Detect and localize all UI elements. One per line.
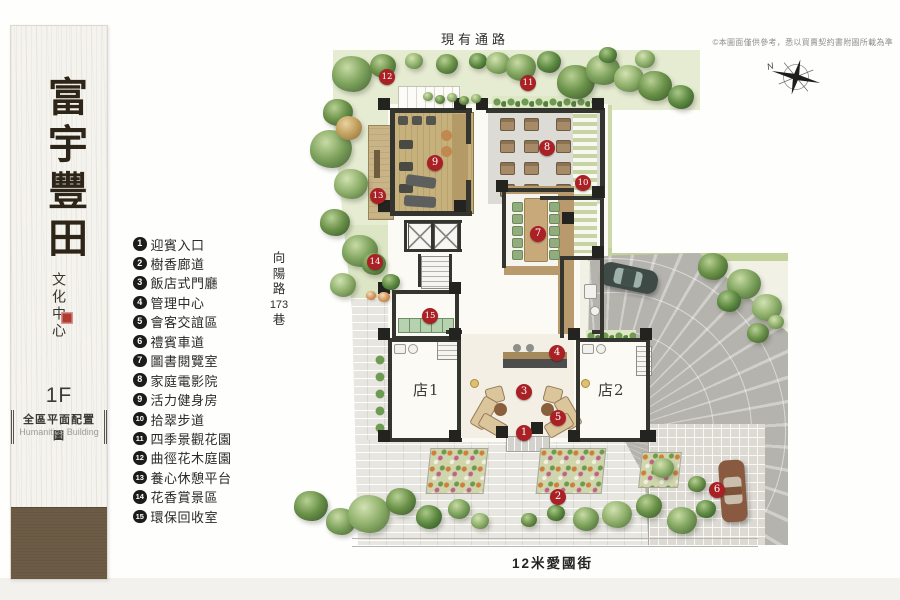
hedge-strip bbox=[374, 352, 386, 436]
legend-item: 4管理中心 bbox=[133, 294, 205, 310]
tree-icon bbox=[635, 50, 655, 68]
compass-n-label: N bbox=[766, 60, 775, 72]
legend-item: 3飯店式門廳 bbox=[133, 275, 218, 291]
stairs bbox=[421, 256, 451, 289]
structural-column bbox=[378, 328, 390, 340]
wall-segment bbox=[592, 330, 604, 334]
sidebar-footer-block bbox=[11, 507, 107, 579]
legend-number-badge: 1 bbox=[133, 237, 147, 251]
legend-item: 15環保回收室 bbox=[133, 508, 218, 524]
structural-column bbox=[378, 98, 390, 110]
structural-column bbox=[496, 426, 508, 438]
basin-fixture bbox=[590, 306, 600, 316]
wall-segment bbox=[458, 220, 461, 252]
legend-item: 5會客交誼區 bbox=[133, 314, 218, 330]
gym-ball bbox=[441, 130, 452, 141]
structural-column bbox=[531, 422, 543, 434]
library-chair bbox=[549, 226, 560, 236]
tree-icon bbox=[423, 92, 433, 101]
structural-column bbox=[592, 98, 604, 110]
wall-segment bbox=[431, 220, 434, 252]
wall-segment bbox=[466, 180, 471, 216]
tree-icon bbox=[599, 47, 617, 63]
elevator-shaft bbox=[408, 223, 432, 250]
structural-column bbox=[496, 180, 508, 192]
wall-segment bbox=[418, 254, 421, 287]
tree-icon bbox=[436, 54, 458, 74]
legend-label: 養心休憩平台 bbox=[151, 468, 232, 487]
basin-fixture bbox=[408, 344, 418, 354]
wall-segment bbox=[646, 338, 650, 442]
project-title: 富宇豐田 bbox=[35, 76, 93, 264]
tree-icon bbox=[334, 169, 368, 200]
wall-segment bbox=[390, 108, 395, 216]
shop-label: 店1 bbox=[413, 379, 440, 400]
page-bottom-shade bbox=[0, 578, 900, 600]
legend-label: 管理中心 bbox=[151, 293, 205, 312]
legend-item: 12曲徑花木庭園 bbox=[133, 450, 232, 466]
tree-icon bbox=[537, 51, 561, 73]
library-chair bbox=[549, 250, 560, 260]
theater-seat bbox=[524, 162, 539, 175]
tree-icon bbox=[382, 274, 400, 290]
flower-bed bbox=[536, 448, 607, 494]
legend-item: 13養心休憩平台 bbox=[133, 469, 232, 485]
theater-seat bbox=[500, 118, 515, 131]
library-chair bbox=[512, 238, 523, 248]
sidebar-board: 富宇豐田 文化中心 1F 全區平面配置圖 Humanities Building bbox=[10, 25, 108, 580]
legend-label: 會客交誼區 bbox=[151, 312, 219, 331]
road-label-bottom: 12米愛國街 bbox=[512, 552, 593, 572]
wall-segment bbox=[457, 338, 461, 442]
platform-bench bbox=[374, 150, 380, 178]
tree-icon bbox=[348, 495, 390, 533]
legend-label: 禮賓車道 bbox=[151, 332, 205, 351]
tree-icon bbox=[448, 499, 470, 519]
street-curb-line bbox=[352, 538, 758, 539]
gym-equipment bbox=[412, 116, 422, 125]
legend-label: 飯店式門廳 bbox=[151, 273, 219, 292]
legend-label: 活力健身房 bbox=[151, 390, 219, 409]
structural-column bbox=[449, 328, 461, 340]
legend-label: 環保回收室 bbox=[151, 507, 219, 526]
wall-segment bbox=[560, 256, 564, 338]
legend-item: 7圖書閱覽室 bbox=[133, 353, 218, 369]
road-label-top: 現有通路 bbox=[441, 29, 509, 48]
floor-lamp bbox=[470, 379, 479, 388]
legend-number-badge: 13 bbox=[133, 471, 147, 485]
tree-icon bbox=[521, 513, 537, 527]
floor-label: 1F bbox=[11, 384, 107, 408]
tree-icon bbox=[471, 94, 481, 103]
legend-number-badge: 14 bbox=[133, 490, 147, 504]
gym-ball bbox=[441, 146, 452, 157]
wall-segment bbox=[388, 338, 392, 442]
library-chair bbox=[512, 202, 523, 212]
legend-label: 圖書閱覽室 bbox=[151, 351, 219, 370]
legend-number-badge: 10 bbox=[133, 412, 147, 426]
structural-column bbox=[644, 430, 656, 442]
tree-icon bbox=[366, 291, 376, 300]
tree-icon bbox=[336, 116, 362, 139]
library-chair bbox=[512, 250, 523, 260]
tree-icon bbox=[378, 292, 390, 303]
legend-number-badge: 12 bbox=[133, 451, 147, 465]
tree-icon bbox=[573, 507, 599, 530]
legend-number-badge: 15 bbox=[133, 510, 147, 524]
wall-segment bbox=[576, 438, 650, 442]
shop-label: 店2 bbox=[598, 379, 625, 400]
tree-icon bbox=[696, 500, 716, 518]
legend-item: 2樹香廊道 bbox=[133, 255, 205, 271]
tree-icon bbox=[459, 96, 469, 105]
legend-item: 9活力健身房 bbox=[133, 392, 218, 408]
gym-bench bbox=[404, 195, 437, 208]
structural-column bbox=[449, 430, 461, 442]
tree-icon bbox=[471, 513, 489, 529]
wall-segment bbox=[576, 338, 648, 342]
legend-label: 四季景觀花園 bbox=[151, 429, 232, 448]
wc-fixture bbox=[394, 344, 406, 354]
floor-lamp bbox=[581, 379, 590, 388]
tree-icon bbox=[698, 253, 728, 280]
wc-fixture bbox=[582, 344, 594, 354]
tree-icon bbox=[416, 505, 442, 528]
tree-icon bbox=[668, 85, 694, 108]
tree-icon bbox=[469, 53, 487, 69]
road-left-char: 路 bbox=[266, 282, 292, 298]
legend-item: 14花香賞景區 bbox=[133, 489, 218, 505]
tree-icon bbox=[688, 476, 706, 492]
legend-number-badge: 5 bbox=[133, 315, 147, 329]
structural-column bbox=[592, 246, 604, 258]
gym-equipment bbox=[398, 116, 408, 125]
disclaimer-text: ©本圖面僅供參考，悉以買賣契約書附圖所載為準 bbox=[713, 37, 894, 48]
road-left-char: 向 bbox=[266, 251, 292, 267]
theater-seat bbox=[556, 162, 571, 175]
desk-stool bbox=[513, 344, 521, 352]
tree-icon bbox=[667, 507, 697, 534]
compass-icon: N bbox=[766, 52, 822, 100]
library-chair bbox=[549, 214, 560, 224]
structural-column bbox=[562, 212, 574, 224]
road-label-left: 向陽路173巷 bbox=[266, 251, 292, 329]
tree-icon bbox=[320, 209, 350, 236]
legend-label: 花香賞景區 bbox=[151, 487, 219, 506]
tree-icon bbox=[330, 273, 356, 296]
road-left-char: 173 bbox=[266, 298, 292, 314]
legend-number-badge: 2 bbox=[133, 257, 147, 271]
legend-number-badge: 8 bbox=[133, 373, 147, 387]
wall-segment bbox=[404, 220, 407, 252]
stairs bbox=[437, 340, 458, 360]
structural-column bbox=[640, 328, 652, 340]
elevator-shaft bbox=[434, 223, 458, 250]
desk-stool bbox=[526, 344, 534, 352]
tree-icon bbox=[447, 93, 457, 102]
street-curb-line bbox=[352, 546, 758, 547]
tree-icon bbox=[636, 494, 662, 517]
structural-column bbox=[454, 200, 466, 212]
library-chair bbox=[549, 202, 560, 212]
project-subtitle: 文化中心 bbox=[49, 272, 69, 340]
legend-number-badge: 9 bbox=[133, 393, 147, 407]
tree-icon bbox=[717, 290, 741, 312]
structural-column bbox=[378, 430, 390, 442]
theater-seat bbox=[556, 118, 571, 131]
wall-segment bbox=[600, 108, 605, 198]
tree-icon bbox=[547, 505, 565, 521]
basin-fixture bbox=[596, 344, 606, 354]
theater-seat bbox=[556, 140, 571, 153]
legend-number-badge: 4 bbox=[133, 296, 147, 310]
seal-stamp-icon bbox=[61, 312, 73, 324]
tree-icon bbox=[435, 95, 445, 104]
legend-label: 家庭電影院 bbox=[151, 371, 219, 390]
legend-item: 8家庭電影院 bbox=[133, 372, 218, 388]
tree-icon bbox=[638, 71, 672, 102]
structural-column bbox=[592, 186, 604, 198]
tree-icon bbox=[768, 315, 784, 329]
legend-item: 11四季景觀花園 bbox=[133, 431, 232, 447]
wall-segment bbox=[576, 338, 580, 442]
gym-dumbbell-rack bbox=[399, 162, 413, 171]
structural-column bbox=[568, 430, 580, 442]
legend-item: 10拾翠步道 bbox=[133, 411, 205, 427]
theater-seat bbox=[524, 140, 539, 153]
tree-icon bbox=[405, 53, 423, 69]
tree-icon bbox=[386, 488, 416, 515]
legend-item: 1迎賓入口 bbox=[133, 236, 205, 252]
coffee-table bbox=[494, 403, 507, 416]
structural-column bbox=[568, 328, 580, 340]
structural-column bbox=[449, 282, 461, 294]
road-left-char: 巷 bbox=[266, 313, 292, 329]
wc-fixture bbox=[584, 284, 597, 299]
library-chair bbox=[512, 214, 523, 224]
theater-seat bbox=[500, 140, 515, 153]
wall-segment bbox=[502, 188, 506, 268]
gym-dumbbell-rack bbox=[399, 140, 413, 149]
car-roof-band bbox=[724, 486, 743, 495]
tree-icon bbox=[747, 323, 769, 343]
wall-segment bbox=[466, 108, 471, 144]
road-left-char: 陽 bbox=[266, 267, 292, 283]
library-chair bbox=[549, 238, 560, 248]
flower-bed bbox=[426, 448, 489, 494]
wall-segment bbox=[486, 108, 604, 113]
tree-icon bbox=[602, 501, 632, 528]
theater-seat bbox=[524, 118, 539, 131]
gym-equipment bbox=[426, 116, 436, 125]
floor-plan-page: 富宇豐田 文化中心 1F 全區平面配置圖 Humanities Building… bbox=[0, 0, 900, 600]
legend-number-badge: 11 bbox=[133, 432, 147, 446]
library-chair bbox=[512, 226, 523, 236]
wall-segment bbox=[502, 188, 574, 192]
plan-name-en: Humanities Building bbox=[11, 427, 107, 437]
legend-number-badge: 3 bbox=[133, 276, 147, 290]
legend-label: 樹香廊道 bbox=[151, 254, 205, 273]
legend-number-badge: 7 bbox=[133, 354, 147, 368]
tree-icon bbox=[332, 56, 372, 92]
legend-item: 6禮賓車道 bbox=[133, 333, 205, 349]
legend-label: 迎賓入口 bbox=[151, 235, 205, 254]
theater-seat bbox=[500, 162, 515, 175]
legend-label: 拾翠步道 bbox=[151, 410, 205, 429]
legend-label: 曲徑花木庭園 bbox=[151, 448, 232, 467]
wall-segment bbox=[392, 290, 396, 340]
tree-icon bbox=[652, 458, 674, 478]
wall-segment bbox=[600, 196, 604, 338]
tree-icon bbox=[294, 491, 328, 522]
legend-number-badge: 6 bbox=[133, 335, 147, 349]
